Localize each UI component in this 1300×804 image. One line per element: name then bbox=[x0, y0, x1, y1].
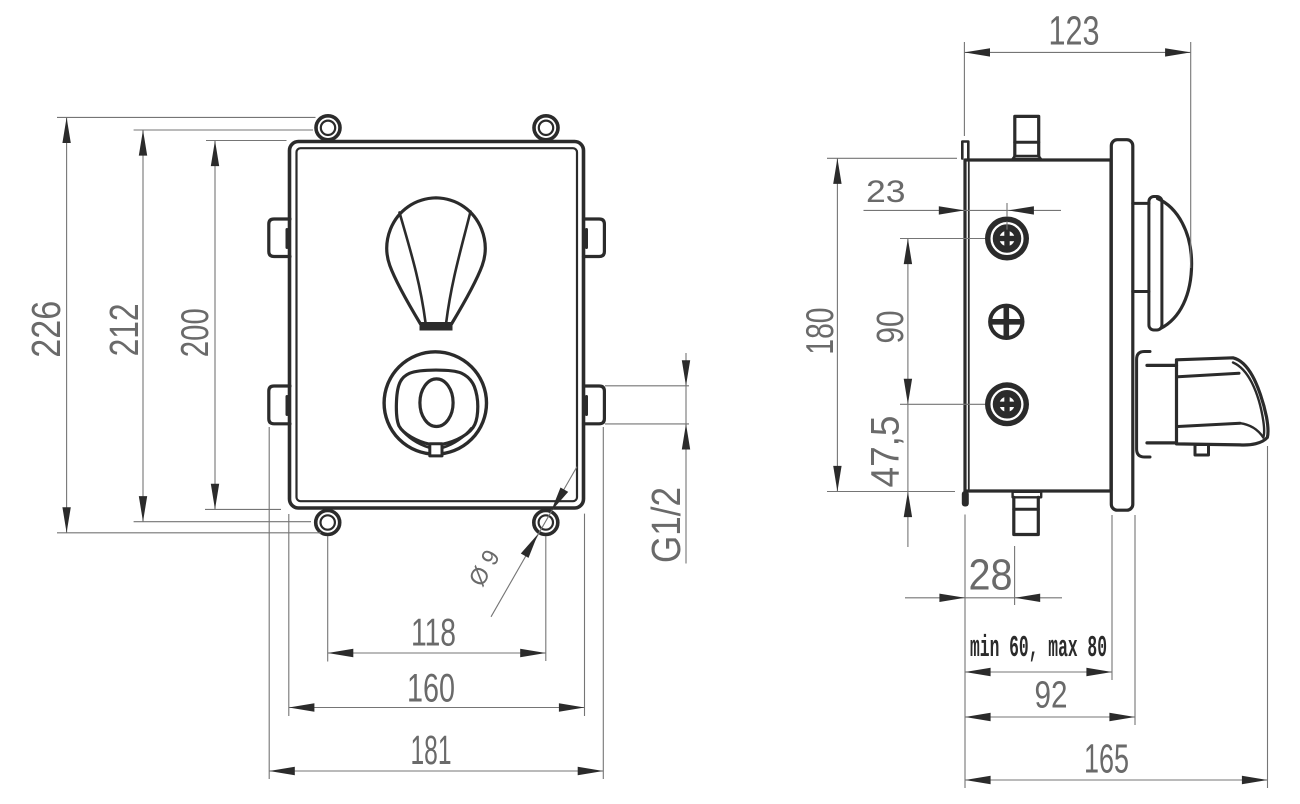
svg-text:165: 165 bbox=[1084, 736, 1129, 782]
svg-text:123: 123 bbox=[1049, 8, 1100, 54]
svg-text:180: 180 bbox=[799, 308, 842, 355]
svg-text:90: 90 bbox=[869, 311, 912, 344]
svg-text:181: 181 bbox=[411, 727, 452, 773]
svg-text:160: 160 bbox=[407, 667, 455, 711]
svg-text:200: 200 bbox=[174, 308, 217, 357]
svg-text:212: 212 bbox=[101, 303, 147, 356]
svg-text:118: 118 bbox=[411, 612, 456, 655]
svg-text:226: 226 bbox=[23, 301, 69, 358]
svg-text:47,5: 47,5 bbox=[864, 416, 908, 488]
svg-text:92: 92 bbox=[1035, 674, 1068, 716]
svg-text:G1/2: G1/2 bbox=[643, 487, 689, 563]
svg-text:28: 28 bbox=[969, 551, 1013, 600]
svg-text:23: 23 bbox=[866, 173, 906, 209]
svg-text:min 60, max 80: min 60, max 80 bbox=[970, 631, 1107, 666]
